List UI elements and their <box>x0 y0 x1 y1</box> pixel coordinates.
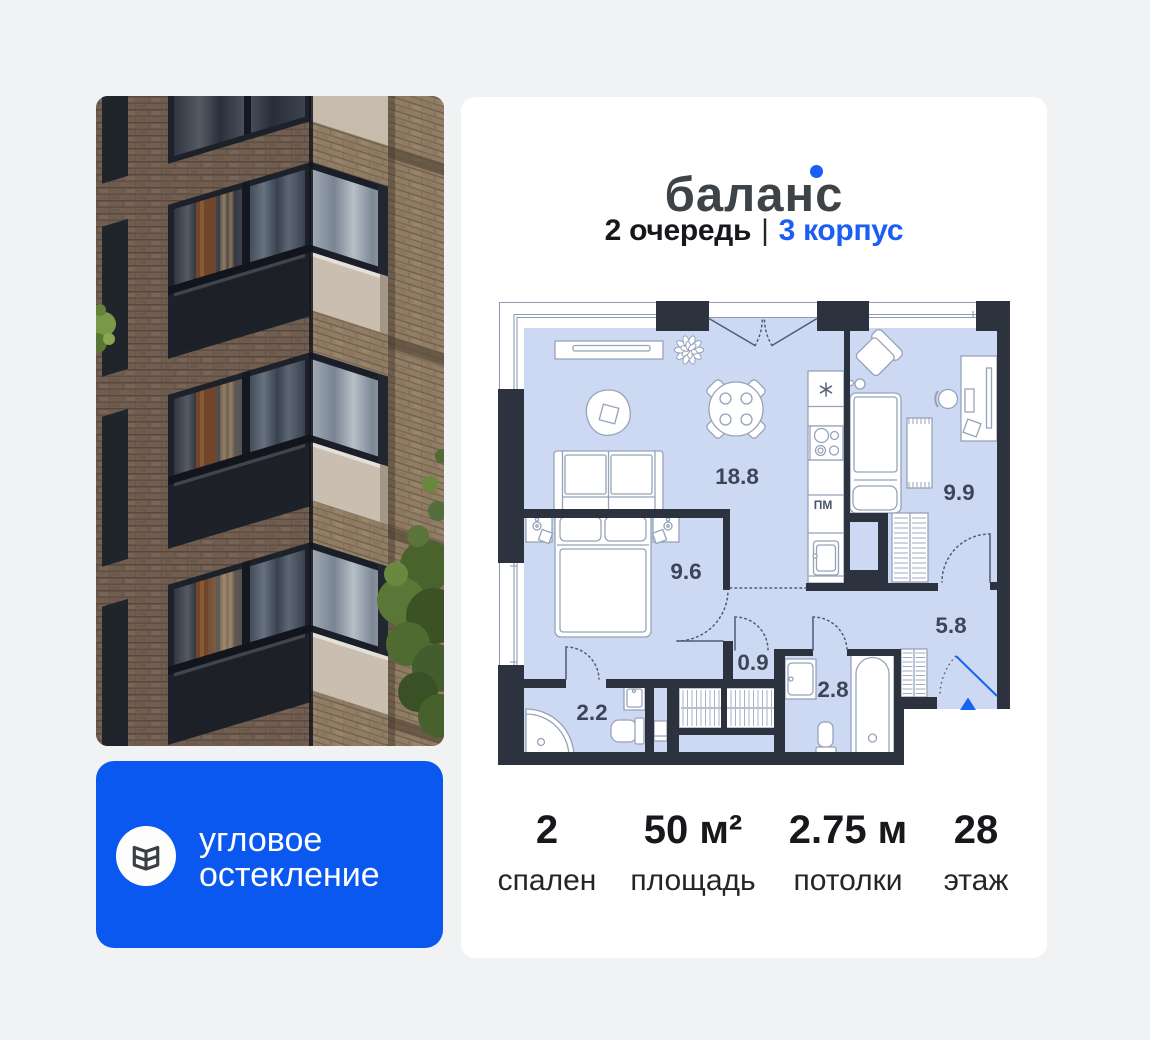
svg-text:9.9: 9.9 <box>943 480 974 505</box>
svg-text:2.8: 2.8 <box>817 677 848 702</box>
svg-text:0.9: 0.9 <box>737 650 768 675</box>
svg-text:2.2: 2.2 <box>576 700 607 725</box>
svg-text:ПМ: ПМ <box>814 498 833 512</box>
svg-text:18.8: 18.8 <box>715 464 759 489</box>
svg-text:5.8: 5.8 <box>935 613 966 638</box>
svg-text:9.6: 9.6 <box>670 559 701 584</box>
